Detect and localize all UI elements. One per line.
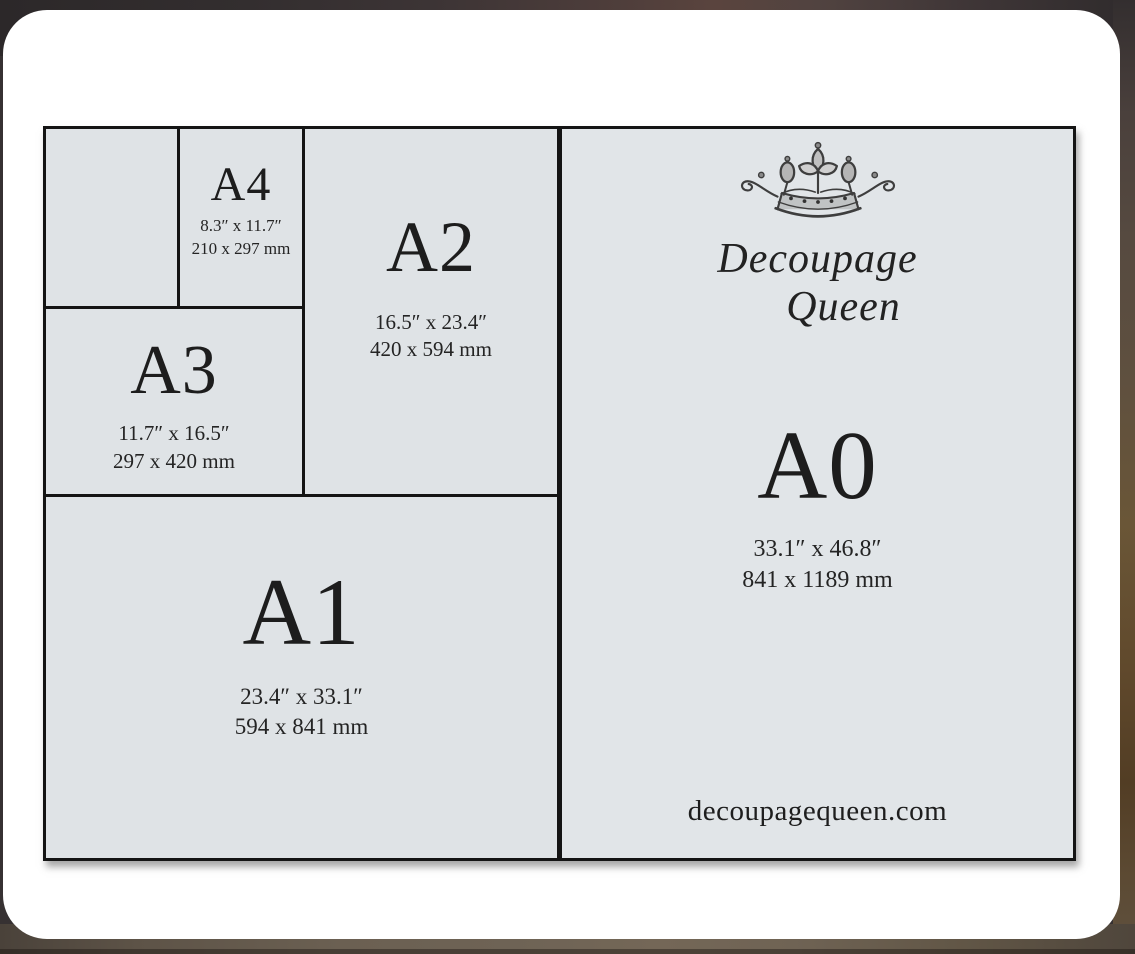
paper-box-a0: Decoupage Queen A0 33.1″ x 46.8″ 841 x 1… [562,129,1073,858]
paper-box-a4: A4 8.3″ x 11.7″ 210 x 297 mm [180,129,302,306]
paper-info-a0: A0 33.1″ x 46.8″ 841 x 1189 mm [562,417,1073,596]
paper-dims-a2: 16.5″ x 23.4″ 420 x 594 mm [370,309,492,364]
crown-icon [720,139,916,234]
paper-box-a2: A2 16.5″ x 23.4″ 420 x 594 mm [305,129,557,494]
brand-website: decoupagequeen.com [562,795,1073,828]
paper-dims-a1: 23.4″ x 33.1″ 594 x 841 mm [235,682,369,742]
paper-box-a3: A3 11.7″ x 16.5″ 297 x 420 mm [46,309,302,494]
product-card: A4 8.3″ x 11.7″ 210 x 297 mm A3 11.7″ x … [3,10,1120,939]
brand-name-line1: Decoupage [717,238,917,280]
paper-mm-a0: 841 x 1189 mm [742,565,892,596]
paper-box-a1: A1 23.4″ x 33.1″ 594 x 841 mm [46,497,557,858]
brand-name-line2: Queen [786,286,901,328]
brand-logo: Decoupage Queen [562,139,1073,328]
paper-dims-a0: 33.1″ x 46.8″ 841 x 1189 mm [742,534,892,596]
paper-dims-a3: 11.7″ x 16.5″ 297 x 420 mm [113,420,235,475]
paper-label-a2: A2 [386,211,476,283]
paper-mm-a4: 210 x 297 mm [192,238,291,260]
paper-inches-a4: 8.3″ x 11.7″ [192,215,291,237]
paper-label-a0: A0 [757,417,878,514]
paper-mm-a3: 297 x 420 mm [113,448,235,475]
paper-inches-a2: 16.5″ x 23.4″ [370,309,492,336]
paper-mm-a1: 594 x 841 mm [235,712,369,742]
paper-dims-a4: 8.3″ x 11.7″ 210 x 297 mm [192,215,291,259]
paper-mm-a2: 420 x 594 mm [370,336,492,363]
paper-inches-a3: 11.7″ x 16.5″ [113,420,235,447]
paper-size-diagram: A4 8.3″ x 11.7″ 210 x 297 mm A3 11.7″ x … [43,126,1076,861]
paper-label-a1: A1 [242,565,360,660]
paper-label-a3: A3 [130,336,218,406]
paper-inches-a0: 33.1″ x 46.8″ [742,534,892,565]
paper-box-a5 [46,129,177,306]
paper-label-a4: A4 [211,161,272,209]
paper-inches-a1: 23.4″ x 33.1″ [235,682,369,712]
